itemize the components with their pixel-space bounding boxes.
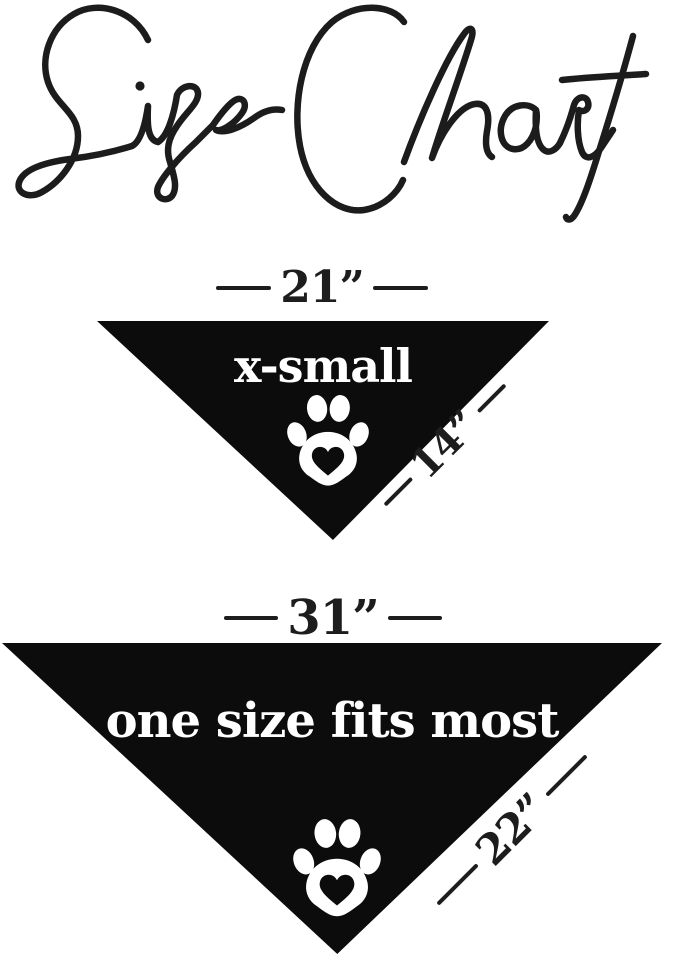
measure-line-left (436, 863, 478, 905)
measurement-top-width-onesize: 31” (224, 595, 442, 641)
script-i-dot (135, 81, 144, 90)
script-letter-e (213, 99, 282, 131)
script-letter-a (501, 105, 560, 151)
paw-toe (306, 395, 329, 423)
script-letter-z (157, 86, 213, 199)
paw-toe (337, 819, 361, 849)
script-letter-S (19, 8, 148, 195)
measure-line-left (216, 286, 271, 290)
paw-heart-icon (292, 819, 382, 920)
script-letter-C (297, 8, 404, 211)
paw-toe (328, 395, 351, 423)
script-letter-i (132, 106, 158, 146)
paw-pad-with-heart-cutout (299, 432, 357, 486)
measurement-value-top-onesize: 31” (278, 594, 387, 642)
measurement-value-top-xsmall: 21” (271, 266, 373, 310)
script-letter-h (404, 29, 492, 162)
script-letter-t-crossbar (562, 74, 646, 80)
measure-line-right (545, 754, 587, 796)
page-title: Size Chart (0, 0, 679, 240)
paw-pad-with-heart-cutout (306, 859, 368, 917)
measurement-top-width-xsmall: 21” (216, 265, 428, 311)
size-chart-diagram: Size Chart 21” x-small (0, 0, 679, 961)
paw-toe (313, 819, 337, 849)
measure-line-right (373, 286, 428, 290)
measure-line-left (384, 477, 414, 507)
measure-line-left (224, 616, 278, 620)
measure-line-right (477, 384, 507, 414)
paw-heart-icon (286, 395, 370, 489)
size-name-label-onesize: one size fits most (2, 697, 662, 745)
measure-line-right (388, 616, 442, 620)
title-script-art (0, 0, 679, 240)
